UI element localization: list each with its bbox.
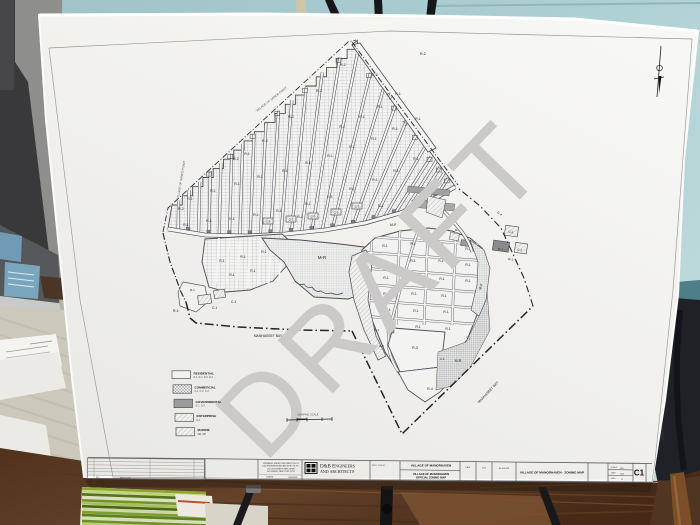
svg-text:REVISION: REVISION [120,477,131,479]
svg-text:R-1: R-1 [240,255,245,259]
svg-text:R-2: R-2 [262,139,268,143]
svg-text:C-3: C-3 [289,218,294,222]
svg-text:C1: C1 [621,479,623,481]
svg-text:C-1: C-1 [212,306,217,310]
svg-text:R-1: R-1 [305,202,311,206]
svg-text:MARINE: MARINE [198,428,210,432]
svg-text:C-1, C-2, C-3: C-1, C-2, C-3 [195,390,210,393]
svg-text:R-1: R-1 [371,137,377,141]
svg-text:C-3: C-3 [266,220,271,224]
svg-text:COMMERCIAL: COMMERCIAL [195,385,216,389]
svg-text:R-1: R-1 [305,161,311,165]
svg-text:C-2: C-2 [517,248,523,253]
svg-text:VILLAGE OF MANORHAVEN - ZONING: VILLAGE OF MANORHAVEN - ZONING MAP [520,471,584,475]
svg-text:R-1: R-1 [508,257,514,262]
svg-text:R-1: R-1 [339,125,345,129]
svg-text:R-1: R-1 [349,145,355,149]
svg-text:R-1: R-1 [183,223,189,227]
svg-text:R-2: R-2 [178,207,184,211]
svg-text:R-2: R-2 [316,89,322,93]
svg-text:ENTERPRISE: ENTERPRISE [197,414,217,418]
svg-text:R-1: R-1 [395,92,401,96]
svg-text:R-2: R-2 [420,52,426,56]
svg-text:R-1: R-1 [413,157,419,161]
svg-text:D&B ENGINEERS AND ARCHITECTS,: D&B ENGINEERS AND ARCHITECTS, P.C. [263,465,300,468]
svg-text:C-3: C-3 [355,205,360,209]
svg-text:GRAPHIC SCALE: GRAPHIC SCALE [297,413,318,417]
svg-text:C-3: C-3 [311,215,316,219]
svg-text:R-1: R-1 [377,105,383,109]
svg-text:R-1: R-1 [234,182,240,186]
svg-text:NO.: NO. [96,477,100,479]
svg-text:R-1, R-2, R-3, R-4: R-1, R-2, R-3, R-4 [194,376,214,379]
svg-text:R-1: R-1 [393,169,399,173]
svg-text:R-1: R-1 [261,250,266,254]
svg-text:AND ARCHITECTS: AND ARCHITECTS [320,469,354,474]
svg-text:MR, MP: MR, MP [198,433,207,436]
svg-text:DATE: DATE [611,471,616,474]
svg-text:R-1: R-1 [372,178,378,182]
svg-text:OFFICIAL ZONING MAP: OFFICIAL ZONING MAP [416,476,446,480]
svg-text:R-2: R-2 [340,63,346,67]
svg-text:VILLAGE OF MANORHAVEN: VILLAGE OF MANORHAVEN [411,464,451,468]
svg-text:R-1: R-1 [229,217,235,221]
svg-text:R-4: R-4 [427,387,433,391]
svg-text:CHECKED: CHECKED [288,477,298,479]
svg-text:C-1: C-1 [440,357,445,361]
svg-text:2023: 2023 [620,474,624,476]
svg-text:RESIDENTIAL: RESIDENTIAL [194,371,215,375]
svg-text:G-1, G-2: G-1, G-2 [196,405,206,408]
svg-text:R-1: R-1 [445,327,450,331]
svg-text:AS SHOWN: AS SHOWN [499,467,510,470]
svg-text:R-1: R-1 [327,195,333,199]
svg-text:C1: C1 [634,469,645,478]
svg-text:R-1: R-1 [276,209,282,213]
svg-text:R-1: R-1 [187,197,193,201]
svg-text:2023: 2023 [482,467,486,469]
svg-text:WOODBURY, NEW YORK 11797: WOODBURY, NEW YORK 11797 [267,471,295,473]
svg-text:R-1: R-1 [253,213,259,217]
svg-text:R-1: R-1 [257,175,263,179]
svg-text:PREPARED UNDER THE DIRECTION O: PREPARED UNDER THE DIRECTION OF [263,462,300,465]
svg-text:R-1: R-1 [229,273,234,277]
svg-text:E-1: E-1 [197,419,201,422]
svg-text:R-1: R-1 [206,219,212,223]
svg-text:GOVERNMENTAL: GOVERNMENTAL [196,400,222,404]
svg-text:R-1: R-1 [190,288,195,292]
svg-text:R-1: R-1 [210,189,216,193]
svg-text:R-1: R-1 [359,115,365,119]
svg-text:R-1: R-1 [415,117,421,121]
svg-text:C-3: C-3 [334,211,339,215]
svg-text:DRAWN: DRAWN [266,476,274,479]
svg-text:330 CROSSWAYS PARK DRIVE: 330 CROSSWAYS PARK DRIVE [267,467,295,470]
svg-text:R-1: R-1 [282,169,288,173]
svg-text:SCALE: SCALE [611,466,618,469]
svg-text:R-3: R-3 [412,346,418,350]
svg-text:R-4: R-4 [173,309,179,313]
svg-text:R-2: R-2 [233,157,239,161]
svg-text:R-1: R-1 [297,215,303,219]
svg-text:C-1: C-1 [231,300,236,304]
svg-text:R-1: R-1 [349,187,355,191]
svg-text:R-1: R-1 [250,269,255,273]
svg-text:VILLAGE OF MANORHAVEN: VILLAGE OF MANORHAVEN [413,472,449,476]
svg-text:PROJ. 1234-01: PROJ. 1234-01 [372,465,385,467]
svg-text:R-1: R-1 [244,152,250,156]
svg-text:R-1: R-1 [392,127,398,131]
svg-text:M-R: M-R [455,359,462,363]
svg-text:R-1: R-1 [327,154,333,158]
svg-text:R-2: R-2 [288,115,294,119]
svg-text:DATE: DATE [466,466,472,469]
svg-text:R-1: R-1 [219,259,224,263]
svg-text:DWG: DWG [611,478,616,480]
